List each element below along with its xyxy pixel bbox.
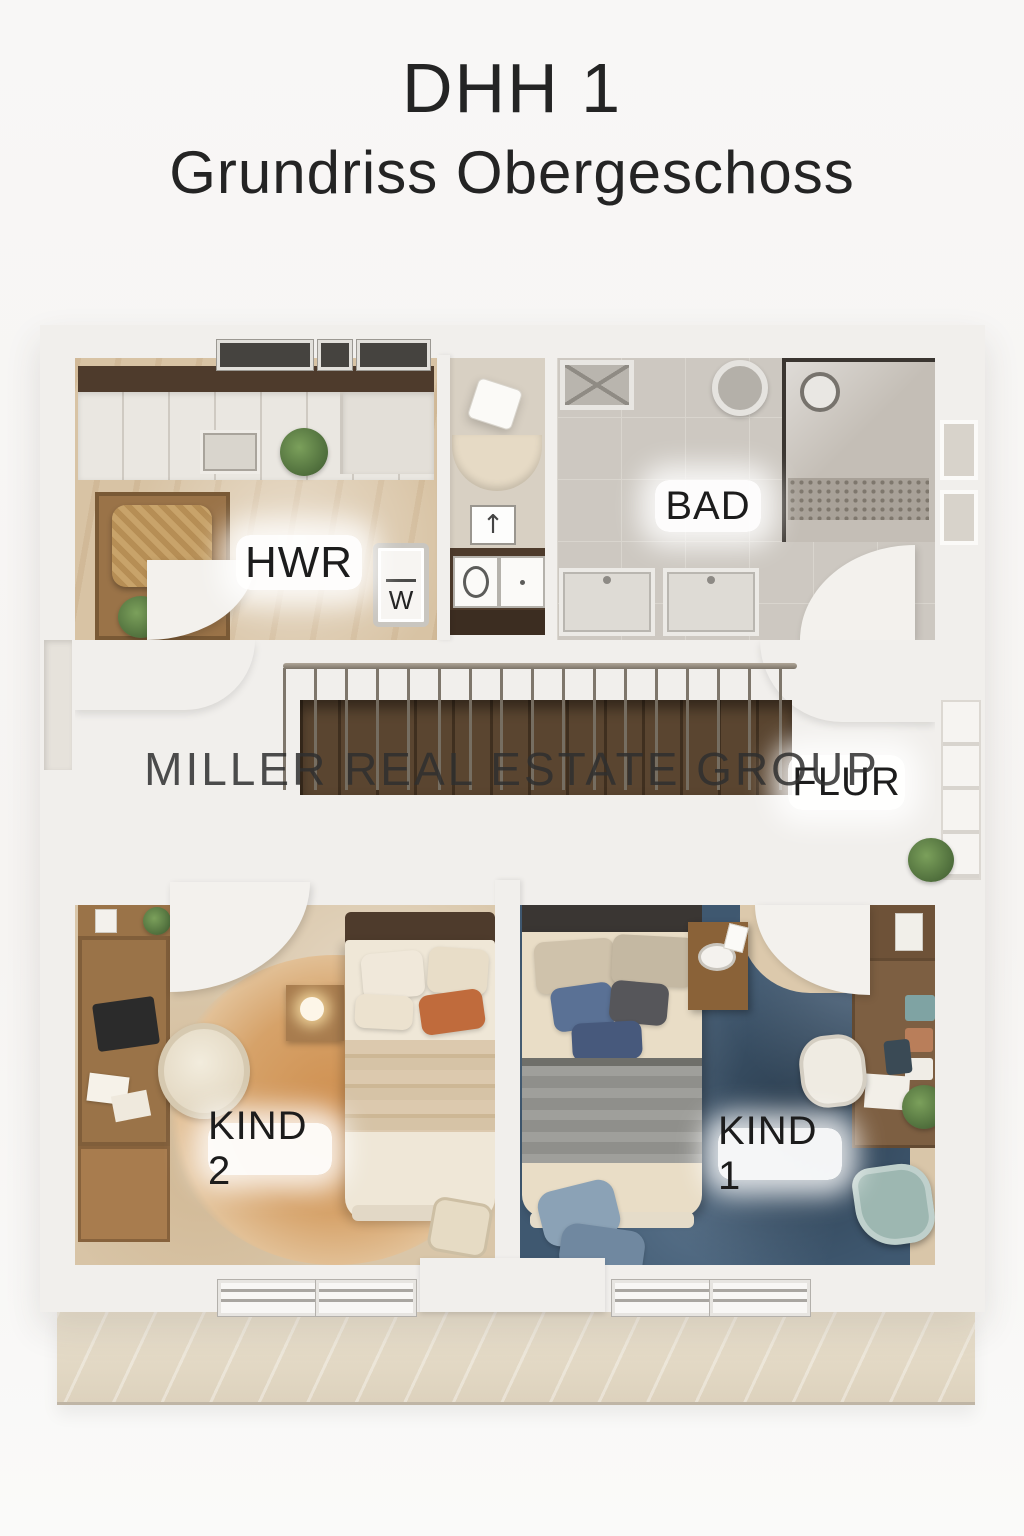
kind2-stool (426, 1195, 495, 1260)
bottom-window-2 (316, 1280, 416, 1316)
bad-sink-left (559, 568, 655, 636)
kind1-blanket (522, 1058, 702, 1163)
kind2-blanket (345, 1040, 495, 1132)
wall-niche-bad (545, 352, 557, 640)
kind1-pillow-gray (608, 980, 669, 1027)
wall-bedroom-divider (495, 880, 520, 1265)
stair-handrail (283, 663, 797, 669)
terrace-strip (57, 1312, 975, 1405)
bottom-wall-pier (420, 1258, 605, 1312)
kind2-room-label: KIND 2 (208, 1123, 332, 1175)
bottom-window-3 (612, 1280, 712, 1316)
kind1-headboard (522, 905, 702, 935)
laptop-icon (92, 996, 160, 1052)
top-window-3 (357, 340, 430, 370)
hwr-plant-icon (280, 428, 328, 476)
wall-left (40, 325, 75, 1312)
room-kind1: KIND 1 (520, 905, 935, 1265)
hall-plant-icon (908, 838, 954, 882)
niche-basin-right (499, 556, 545, 608)
bottom-window-1 (218, 1280, 318, 1316)
arrow-up-icon: ↑ (482, 510, 504, 540)
top-window-1 (217, 340, 313, 370)
bottom-window-4 (710, 1280, 810, 1316)
mirror-icon (712, 360, 768, 416)
kind1-shelf-box (895, 913, 923, 951)
hwr-room-label: HWR (236, 535, 362, 590)
washer-divider (386, 579, 416, 582)
niche-basin-left (453, 556, 499, 608)
hwr-right-cabinet (340, 392, 434, 474)
shower-floor (788, 478, 929, 520)
candle-icon (300, 997, 324, 1021)
bad-sink-right (663, 568, 759, 636)
watermark-text: MILLER REAL ESTATE GROUP (0, 742, 1024, 796)
kind1-pillow-navy (571, 1020, 643, 1062)
room-kind2: KIND 2 (75, 905, 495, 1265)
right-window-lower (940, 490, 978, 545)
shower-fixture-icon (800, 372, 840, 412)
wall-hwr-niche (437, 355, 450, 640)
washer-label: W (389, 585, 414, 616)
kind1-desk-object (883, 1039, 912, 1076)
plan-subtitle: Grundriss Obergeschoss (0, 138, 1024, 207)
flur-soffit-left (75, 640, 255, 710)
kind2-pillow-3 (354, 994, 414, 1031)
skylight-icon (560, 360, 634, 410)
kind2-cabinet (78, 1146, 170, 1242)
plan-title: DHH 1 (0, 48, 1024, 128)
room-bad: BAD (557, 355, 935, 640)
wall-top (40, 325, 985, 358)
kind2-shelf-plant-icon (143, 907, 171, 935)
niche-floor-strip (450, 610, 545, 635)
kind2-shelf-box (95, 909, 117, 933)
toilet-icon (452, 435, 542, 491)
wc-niche: ↑ (450, 355, 545, 635)
kind2-pillow-1 (360, 949, 426, 1000)
arrow-sign: ↑ (470, 505, 516, 545)
bad-door-arc (800, 545, 915, 640)
room-hwr: W HWR (75, 358, 437, 640)
kind1-room-label: KIND 1 (718, 1128, 842, 1180)
kind1-box-teal (905, 995, 935, 1021)
washing-machine: W (373, 543, 429, 627)
top-window-2 (318, 340, 352, 370)
kind1-desk-chair (796, 1032, 869, 1111)
kind2-pillow-2 (426, 946, 489, 996)
pendant-lamp-icon (467, 377, 524, 431)
hwr-drawer-unit (200, 430, 260, 474)
right-window-upper (940, 420, 978, 480)
bad-room-label: BAD (655, 480, 761, 532)
